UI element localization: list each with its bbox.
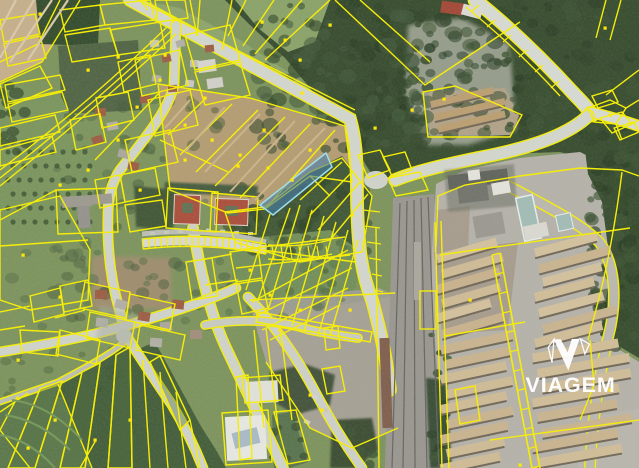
svg-text:VIAGEM: VIAGEM	[526, 373, 616, 397]
